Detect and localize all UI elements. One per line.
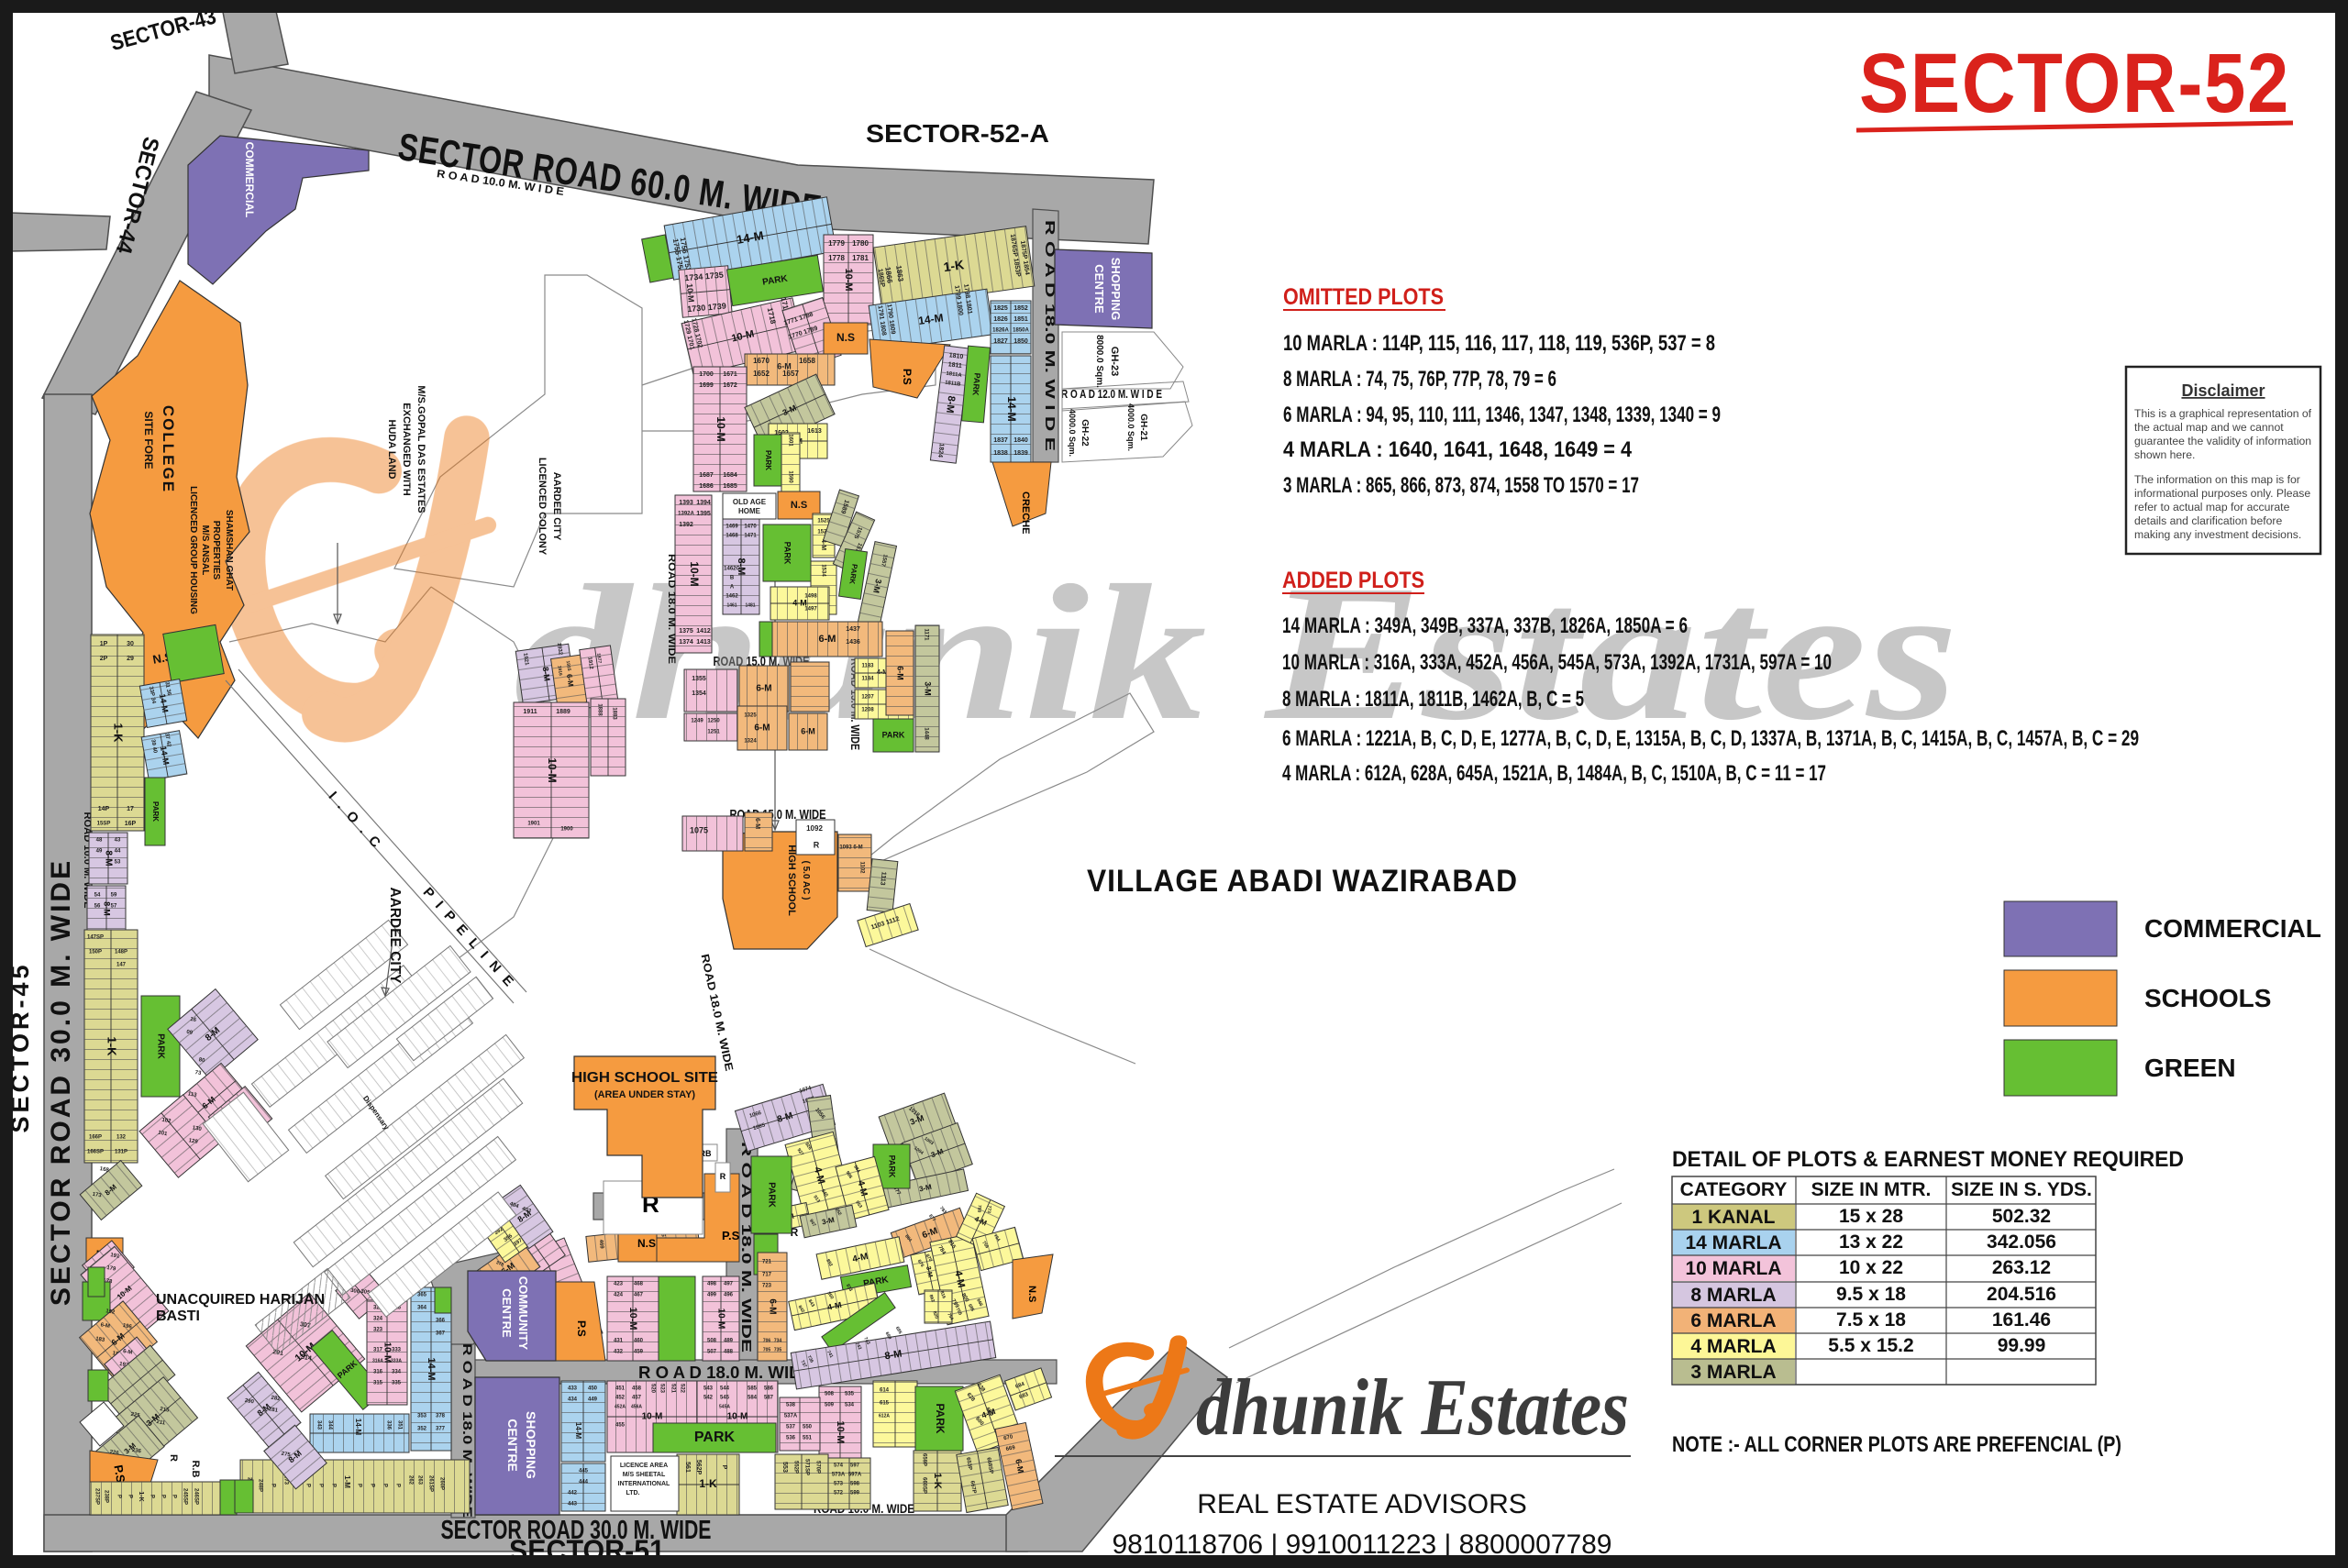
svg-text:352: 352	[417, 1427, 427, 1432]
svg-text:1102: 1102	[858, 861, 864, 874]
svg-text:GREEN: GREEN	[2144, 1054, 2236, 1082]
svg-text:1-K: 1-K	[699, 1477, 717, 1490]
svg-text:UNACQUIRED HARIJAN: UNACQUIRED HARIJAN	[156, 1292, 325, 1308]
svg-text:13 x 22: 13 x 22	[1839, 1231, 1903, 1253]
svg-text:SECTOR ROAD 30.0 M. WIDE: SECTOR ROAD 30.0 M. WIDE	[46, 858, 76, 1306]
svg-text:SHOPPING: SHOPPING	[1109, 258, 1123, 321]
svg-text:6 MARLA: 6 MARLA	[1690, 1310, 1776, 1331]
svg-text:496: 496	[724, 1293, 734, 1298]
svg-text:343: 343	[316, 1420, 321, 1430]
svg-text:723: 723	[762, 1284, 772, 1289]
svg-text:1355: 1355	[692, 676, 706, 682]
svg-text:1888: 1888	[596, 703, 602, 716]
svg-text:366: 366	[436, 1319, 446, 1324]
svg-text:457: 457	[632, 1396, 642, 1401]
svg-text:1780: 1780	[852, 239, 869, 248]
svg-text:1779: 1779	[828, 239, 845, 248]
svg-text:PARK: PARK	[151, 801, 160, 822]
svg-text:29: 29	[127, 656, 134, 662]
svg-text:166P: 166P	[89, 1135, 102, 1141]
svg-text:161.46: 161.46	[1992, 1309, 2051, 1331]
svg-text:660SP: 660SP	[921, 1477, 926, 1494]
svg-text:237SP: 237SP	[94, 1488, 99, 1505]
svg-text:AARDEE CITY: AARDEE CITY	[551, 472, 562, 541]
svg-text:333A: 333A	[391, 1358, 402, 1364]
svg-text:544: 544	[720, 1386, 730, 1392]
svg-text:REAL ESTATE ADVISORS: REAL ESTATE ADVISORS	[1197, 1489, 1527, 1519]
svg-text:R: R	[168, 1454, 179, 1462]
svg-text:456A: 456A	[631, 1404, 642, 1409]
svg-text:This is a graphical representa: This is a graphical representation of	[2134, 407, 2312, 420]
svg-text:M/S.GOPAL DAS ESTATES: M/S.GOPAL DAS ESTATES	[415, 385, 426, 513]
svg-text:1838: 1838	[993, 450, 1008, 457]
svg-text:378: 378	[436, 1414, 446, 1419]
svg-text:R O A D 18.0 M. WIDE: R O A D 18.0 M. WIDE	[638, 1364, 813, 1382]
svg-text:1183: 1183	[861, 664, 874, 669]
svg-text:14P: 14P	[98, 806, 110, 812]
svg-text:498: 498	[707, 1282, 717, 1287]
svg-text:1251: 1251	[707, 730, 720, 735]
svg-text:15 x 28: 15 x 28	[1839, 1206, 1903, 1227]
svg-text:585: 585	[748, 1386, 758, 1392]
svg-text:refer to actual map for accura: refer to actual map for accurate	[2134, 501, 2290, 513]
svg-text:1394: 1394	[696, 500, 711, 506]
svg-text:PARK: PARK	[882, 730, 905, 739]
svg-text:377: 377	[436, 1427, 446, 1432]
svg-text:534: 534	[845, 1403, 855, 1408]
svg-text:1781: 1781	[852, 254, 869, 262]
svg-text:550: 550	[803, 1425, 813, 1430]
svg-text:4000.0 Sqm.: 4000.0 Sqm.	[1126, 403, 1135, 451]
svg-text:543: 543	[703, 1386, 714, 1392]
svg-text:Disclaimer: Disclaimer	[2181, 381, 2265, 400]
svg-text:537: 537	[786, 1425, 796, 1430]
svg-text:542: 542	[703, 1396, 714, 1401]
svg-text:10-M: 10-M	[715, 1309, 725, 1330]
svg-text:P: P	[369, 1484, 374, 1487]
svg-text:551: 551	[803, 1436, 813, 1441]
svg-text:246SP: 246SP	[193, 1488, 198, 1505]
svg-text:705: 705	[763, 1347, 771, 1353]
svg-text:263: 263	[416, 1475, 422, 1485]
svg-text:1471: 1471	[744, 534, 757, 539]
svg-text:1657: 1657	[782, 370, 799, 378]
svg-text:452A: 452A	[615, 1404, 626, 1409]
svg-text:1P: 1P	[100, 641, 108, 647]
svg-text:59: 59	[111, 893, 117, 899]
svg-text:14-M: 14-M	[354, 1419, 362, 1436]
svg-text:P: P	[317, 1484, 323, 1487]
svg-text:1207: 1207	[861, 695, 874, 701]
svg-text:573: 573	[834, 1482, 844, 1487]
svg-text:1250: 1250	[707, 719, 720, 724]
svg-text:245SP: 245SP	[182, 1488, 187, 1505]
svg-text:P: P	[382, 1484, 387, 1487]
svg-text:LICENCED GROUP HOUSING: LICENCED GROUP HOUSING	[188, 486, 198, 614]
svg-text:DETAIL OF PLOTS & EARNEST MONE: DETAIL OF PLOTS & EARNEST MONEY REQUIRED	[1672, 1147, 2184, 1172]
svg-text:1392: 1392	[679, 522, 693, 528]
svg-text:1851: 1851	[1013, 316, 1028, 323]
svg-text:460: 460	[634, 1339, 644, 1344]
svg-text:INTERNATIONAL: INTERNATIONAL	[618, 1481, 670, 1487]
svg-text:334: 334	[392, 1370, 402, 1375]
svg-text:721: 721	[762, 1260, 772, 1265]
svg-text:1462: 1462	[725, 594, 738, 600]
svg-text:459: 459	[634, 1350, 644, 1355]
svg-text:1826: 1826	[993, 316, 1008, 323]
svg-text:561: 561	[684, 1462, 691, 1473]
svg-text:1613: 1613	[807, 428, 822, 435]
svg-text:587: 587	[764, 1396, 774, 1401]
svg-text:P: P	[127, 1495, 132, 1498]
svg-text:1685: 1685	[723, 483, 737, 490]
svg-text:1850A: 1850A	[1013, 328, 1029, 334]
svg-text:1684: 1684	[723, 472, 737, 479]
svg-text:238P: 238P	[103, 1490, 108, 1503]
svg-text:147: 147	[116, 963, 127, 968]
svg-text:449: 449	[588, 1397, 598, 1403]
svg-text:1601: 1601	[787, 434, 792, 447]
svg-text:584: 584	[748, 1396, 758, 1401]
svg-text:522: 522	[679, 1384, 684, 1394]
svg-text:N.S: N.S	[836, 331, 855, 344]
svg-text:597A: 597A	[848, 1473, 862, 1478]
svg-text:263.12: 263.12	[1992, 1257, 2051, 1278]
svg-text:1470: 1470	[744, 525, 757, 530]
svg-text:10-M: 10-M	[688, 561, 701, 586]
svg-text:1325: 1325	[744, 713, 757, 719]
svg-text:1687: 1687	[699, 472, 714, 479]
svg-text:A: A	[730, 585, 735, 591]
svg-text:R: R	[720, 1172, 726, 1181]
svg-text:537A: 537A	[784, 1414, 798, 1419]
svg-text:EXCHANGED WITH: EXCHANGED WITH	[401, 403, 412, 496]
svg-text:3-M: 3-M	[924, 681, 933, 696]
svg-text:489: 489	[724, 1339, 734, 1344]
svg-text:508: 508	[707, 1339, 717, 1344]
svg-text:(AREA UNDER STAY): (AREA UNDER STAY)	[594, 1089, 695, 1100]
svg-text:131P: 131P	[115, 1150, 127, 1155]
svg-text:1590: 1590	[787, 470, 792, 483]
svg-text:14-M: 14-M	[574, 1422, 582, 1440]
svg-text:10 MARLA : 114P, 115, 116, 117: 10 MARLA : 114P, 115, 116, 117, 118, 119…	[1283, 331, 1715, 356]
svg-text:SITE FORE: SITE FORE	[142, 411, 155, 469]
svg-text:1889: 1889	[556, 709, 570, 715]
svg-text:8000.0 Sqm.: 8000.0 Sqm.	[1094, 335, 1104, 388]
svg-text:1208: 1208	[861, 708, 874, 713]
svg-text:P: P	[160, 1495, 165, 1498]
svg-text:451: 451	[615, 1386, 626, 1392]
svg-text:1437: 1437	[846, 626, 860, 633]
svg-text:1075: 1075	[690, 825, 708, 834]
svg-text:N.S: N.S	[791, 500, 807, 511]
svg-text:7.5 x 18: 7.5 x 18	[1836, 1309, 1906, 1331]
svg-text:10-M: 10-M	[714, 416, 727, 441]
svg-text:336: 336	[385, 1420, 391, 1430]
svg-text:1827: 1827	[993, 338, 1008, 345]
svg-text:COLLEGE: COLLEGE	[160, 405, 177, 493]
svg-text:8 MARLA : 1811A, 1811B, 1462A,: 8 MARLA : 1811A, 1811B, 1462A, B, C = 5	[1282, 687, 1584, 712]
svg-text:333: 333	[392, 1348, 402, 1353]
svg-text:573A: 573A	[832, 1473, 846, 1478]
svg-text:4 MARLA : 1640, 1641, 1648, 16: 4 MARLA : 1640, 1641, 1648, 1649 = 4	[1283, 437, 1633, 462]
svg-text:150P: 150P	[89, 950, 102, 955]
svg-text:The information on this map is: The information on this map is for	[2134, 473, 2300, 486]
svg-text:30: 30	[127, 641, 134, 647]
svg-text:10-M: 10-M	[685, 283, 696, 303]
svg-text:535: 535	[845, 1392, 855, 1397]
svg-text:PARK: PARK	[934, 1403, 947, 1433]
svg-text:PARK: PARK	[764, 450, 772, 470]
svg-text:316: 316	[373, 1370, 383, 1375]
svg-text:GH-22: GH-22	[1080, 419, 1090, 447]
svg-text:507: 507	[707, 1350, 717, 1355]
svg-text:598: 598	[850, 1482, 860, 1487]
svg-text:1497: 1497	[804, 607, 817, 613]
svg-text:562P: 562P	[695, 1460, 702, 1475]
svg-text:49: 49	[96, 849, 103, 855]
svg-text:734: 734	[774, 1338, 782, 1343]
svg-text:P: P	[356, 1484, 361, 1487]
svg-text:1901: 1901	[527, 822, 540, 827]
svg-text:1839: 1839	[1013, 450, 1028, 457]
svg-text:431: 431	[614, 1339, 624, 1344]
svg-text:56: 56	[94, 904, 101, 910]
svg-text:615: 615	[880, 1401, 890, 1407]
svg-text:248P: 248P	[257, 1479, 262, 1492]
svg-text:1093 6-M: 1093 6-M	[839, 845, 862, 851]
svg-text:1354: 1354	[692, 690, 706, 697]
svg-text:597: 597	[850, 1463, 860, 1469]
svg-text:10-M: 10-M	[642, 1412, 663, 1422]
svg-text:9.5 x 18: 9.5 x 18	[1836, 1284, 1906, 1305]
svg-text:VILLAGE ABADI WAZIRABAD: VILLAGE ABADI WAZIRABAD	[1087, 864, 1518, 899]
svg-text:523: 523	[659, 1384, 664, 1394]
svg-text:706: 706	[763, 1338, 771, 1343]
svg-text:553: 553	[781, 1462, 788, 1473]
svg-text:P: P	[171, 1495, 176, 1498]
svg-text:1 KANAL: 1 KANAL	[1691, 1207, 1775, 1228]
svg-text:SCHOOLS: SCHOOLS	[2144, 984, 2271, 1012]
svg-text:14 MARLA: 14 MARLA	[1685, 1232, 1781, 1253]
svg-text:1534: 1534	[820, 564, 825, 577]
svg-text:HIGH SCHOOL SITE: HIGH SCHOOL SITE	[571, 1070, 718, 1086]
svg-text:424: 424	[614, 1293, 624, 1298]
svg-text:1392A: 1392A	[678, 512, 694, 517]
svg-text:1412: 1412	[696, 628, 711, 635]
svg-text:204.516: 204.516	[1987, 1284, 2056, 1305]
svg-text:1672: 1672	[723, 382, 737, 389]
svg-text:10 MARLA: 10 MARLA	[1685, 1258, 1781, 1279]
svg-text:1171: 1171	[923, 628, 928, 641]
svg-text:315: 315	[373, 1381, 383, 1386]
svg-text:450: 450	[588, 1386, 598, 1392]
svg-text:735: 735	[774, 1347, 782, 1353]
svg-text:COMMERCIAL: COMMERCIAL	[2144, 914, 2321, 943]
svg-text:497: 497	[724, 1282, 734, 1287]
svg-text:8 MARLA : 74, 75, 76P, 77P, 78: 8 MARLA : 74, 75, 76P, 77P, 78, 79 = 6	[1283, 367, 1556, 392]
svg-text:SHOPPING: SHOPPING	[524, 1411, 538, 1479]
svg-text:432: 432	[614, 1350, 624, 1355]
svg-text:488: 488	[724, 1350, 734, 1355]
svg-text:COMMERCIAL: COMMERCIAL	[243, 142, 256, 218]
svg-text:4 MARLA: 4 MARLA	[1690, 1336, 1776, 1357]
svg-text:SIZE IN S. YDS.: SIZE IN S. YDS.	[1951, 1179, 2092, 1200]
svg-text:1670: 1670	[753, 357, 770, 365]
svg-text:99.99: 99.99	[1998, 1335, 2046, 1356]
svg-text:LICENCED COLONY: LICENCED COLONY	[537, 458, 548, 556]
svg-text:434: 434	[568, 1397, 578, 1403]
svg-text:6 MARLA : 1221A, B, C, D, E, 1: 6 MARLA : 1221A, B, C, D, E, 1277A, B, C…	[1282, 726, 2139, 751]
svg-text:GH-21: GH-21	[1138, 414, 1148, 441]
svg-text:538: 538	[786, 1403, 796, 1408]
svg-text:48: 48	[96, 838, 103, 844]
svg-text:P: P	[305, 1484, 310, 1487]
svg-text:586: 586	[764, 1386, 774, 1392]
svg-text:571SP: 571SP	[803, 1459, 809, 1475]
svg-text:353: 353	[417, 1414, 427, 1419]
svg-text:1699: 1699	[699, 382, 714, 389]
svg-text:details and clarification befo: details and clarification before	[2134, 514, 2282, 527]
svg-text:1825: 1825	[993, 305, 1008, 312]
svg-text:323: 323	[373, 1328, 383, 1333]
svg-text:1436: 1436	[846, 639, 860, 646]
svg-text:CENTRE: CENTRE	[505, 1419, 520, 1472]
svg-text:1481: 1481	[745, 602, 755, 608]
svg-text:10 x 22: 10 x 22	[1839, 1257, 1903, 1278]
svg-text:317: 317	[373, 1348, 383, 1353]
svg-text:132: 132	[116, 1135, 127, 1141]
svg-text:P: P	[270, 1484, 275, 1487]
svg-text:6-M: 6-M	[756, 684, 771, 694]
svg-text:1092: 1092	[806, 824, 823, 833]
svg-text:BASTI: BASTI	[156, 1309, 200, 1324]
svg-text:552P: 552P	[792, 1461, 798, 1474]
svg-text:1-K: 1-K	[112, 723, 126, 744]
svg-text:444: 444	[579, 1480, 589, 1485]
svg-text:LICENCE AREA: LICENCE AREA	[620, 1463, 668, 1469]
svg-text:14-M: 14-M	[426, 1357, 437, 1380]
svg-text:PARK: PARK	[155, 1033, 165, 1059]
svg-text:6-M: 6-M	[819, 634, 836, 645]
svg-text:1395: 1395	[696, 511, 711, 517]
svg-text:3 MARLA: 3 MARLA	[1690, 1362, 1776, 1383]
svg-text:1462C: 1462C	[724, 567, 740, 572]
svg-text:1900: 1900	[560, 827, 573, 833]
svg-text:informational purposes only. P: informational purposes only. Please	[2134, 487, 2310, 500]
svg-text:8-M: 8-M	[541, 667, 552, 682]
svg-text:PARK: PARK	[783, 542, 792, 565]
svg-text:SHAMSHAN GHAT: SHAMSHAN GHAT	[224, 510, 234, 591]
svg-text:1652: 1652	[753, 370, 770, 378]
svg-text:6 MARLA : 94, 95, 110, 111, 13: 6 MARLA : 94, 95, 110, 111, 1346, 1347, …	[1283, 403, 1721, 427]
svg-text:10-M: 10-M	[627, 1307, 638, 1330]
svg-text:CATEGORY: CATEGORY	[1680, 1179, 1788, 1200]
svg-text:545: 545	[720, 1396, 730, 1401]
svg-text:316A: 316A	[372, 1358, 383, 1364]
svg-text:780: 780	[976, 1205, 982, 1213]
svg-text:364: 364	[417, 1306, 427, 1311]
svg-text:CENTRE: CENTRE	[500, 1288, 514, 1338]
svg-text:43: 43	[115, 838, 121, 844]
svg-text:AARDEE CITY: AARDEE CITY	[387, 888, 403, 984]
svg-text:COMMUNITY: COMMUNITY	[516, 1276, 530, 1350]
svg-text:261SP: 261SP	[427, 1475, 433, 1492]
svg-text:1461: 1461	[726, 602, 737, 608]
svg-text:5.5 x 15.2: 5.5 x 15.2	[1828, 1335, 1913, 1356]
svg-text:335: 335	[392, 1381, 402, 1386]
svg-text:53: 53	[115, 860, 121, 866]
svg-text:P.S: P.S	[901, 369, 914, 385]
svg-text:10-M: 10-M	[843, 268, 854, 291]
svg-text:8-M: 8-M	[944, 395, 957, 414]
svg-text:R.B: R.B	[190, 1461, 201, 1478]
svg-text:10 MARLA : 316A, 333A, 452A, 4: 10 MARLA : 316A, 333A, 452A, 456A, 545A,…	[1282, 650, 1832, 675]
svg-text:344: 344	[327, 1420, 332, 1430]
svg-text:PROPERTIES: PROPERTIES	[211, 521, 221, 580]
svg-text:4000.0 Sqm.: 4000.0 Sqm.	[1068, 409, 1077, 457]
svg-text:P: P	[721, 1465, 727, 1470]
svg-text:469: 469	[598, 1239, 604, 1249]
svg-text:1498: 1498	[804, 594, 817, 600]
svg-text:N.S: N.S	[1026, 1286, 1037, 1302]
svg-text:614: 614	[880, 1388, 890, 1394]
svg-text:324: 324	[373, 1317, 383, 1322]
svg-text:P: P	[149, 1495, 154, 1498]
svg-text:1850: 1850	[1013, 338, 1028, 345]
svg-text:1852: 1852	[1013, 305, 1028, 312]
svg-text:M/S ANSAL: M/S ANSAL	[200, 525, 210, 576]
svg-text:making any investment decision: making any investment decisions.	[2134, 528, 2301, 541]
svg-text:P: P	[394, 1484, 400, 1487]
svg-text:1374: 1374	[679, 639, 693, 646]
svg-text:433: 433	[568, 1386, 578, 1392]
svg-text:guarantee the validity of info: guarantee the validity of information	[2134, 435, 2311, 447]
svg-text:773: 773	[986, 1205, 992, 1213]
svg-text:1469: 1469	[725, 525, 738, 530]
svg-text:599: 599	[850, 1491, 860, 1496]
svg-text:6-M: 6-M	[801, 726, 815, 735]
svg-text:16P: 16P	[125, 821, 137, 827]
svg-text:SIZE IN MTR.: SIZE IN MTR.	[1811, 1179, 1932, 1200]
svg-text:1184: 1184	[861, 677, 874, 682]
svg-text:6-M: 6-M	[896, 666, 905, 680]
svg-text:ROAD 18.0 M. WIDE: ROAD 18.0 M. WIDE	[666, 554, 677, 664]
svg-text:442: 442	[568, 1491, 578, 1496]
svg-text:1671: 1671	[723, 371, 737, 378]
svg-text:455: 455	[615, 1423, 626, 1429]
svg-text:260P: 260P	[438, 1477, 444, 1490]
svg-text:367: 367	[436, 1331, 446, 1337]
svg-text:PARK: PARK	[888, 1155, 897, 1178]
svg-text:572: 572	[834, 1491, 844, 1496]
svg-text:536: 536	[786, 1436, 796, 1441]
svg-text:6-M: 6-M	[767, 1298, 777, 1314]
svg-text:1468: 1468	[725, 534, 738, 539]
svg-text:717: 717	[762, 1273, 772, 1278]
svg-text:2P: 2P	[100, 656, 108, 662]
svg-text:44: 44	[115, 849, 121, 855]
svg-text:1448: 1448	[923, 727, 928, 740]
svg-text:14-M: 14-M	[1005, 396, 1018, 421]
svg-text:545A: 545A	[719, 1404, 730, 1409]
svg-text:15SP: 15SP	[97, 822, 111, 827]
svg-text:1-K: 1-K	[943, 257, 966, 274]
svg-text:N.S: N.S	[637, 1237, 656, 1250]
svg-text:1778: 1778	[828, 254, 845, 262]
svg-text:509: 509	[825, 1403, 835, 1408]
svg-text:CRECHE: CRECHE	[1020, 491, 1031, 534]
